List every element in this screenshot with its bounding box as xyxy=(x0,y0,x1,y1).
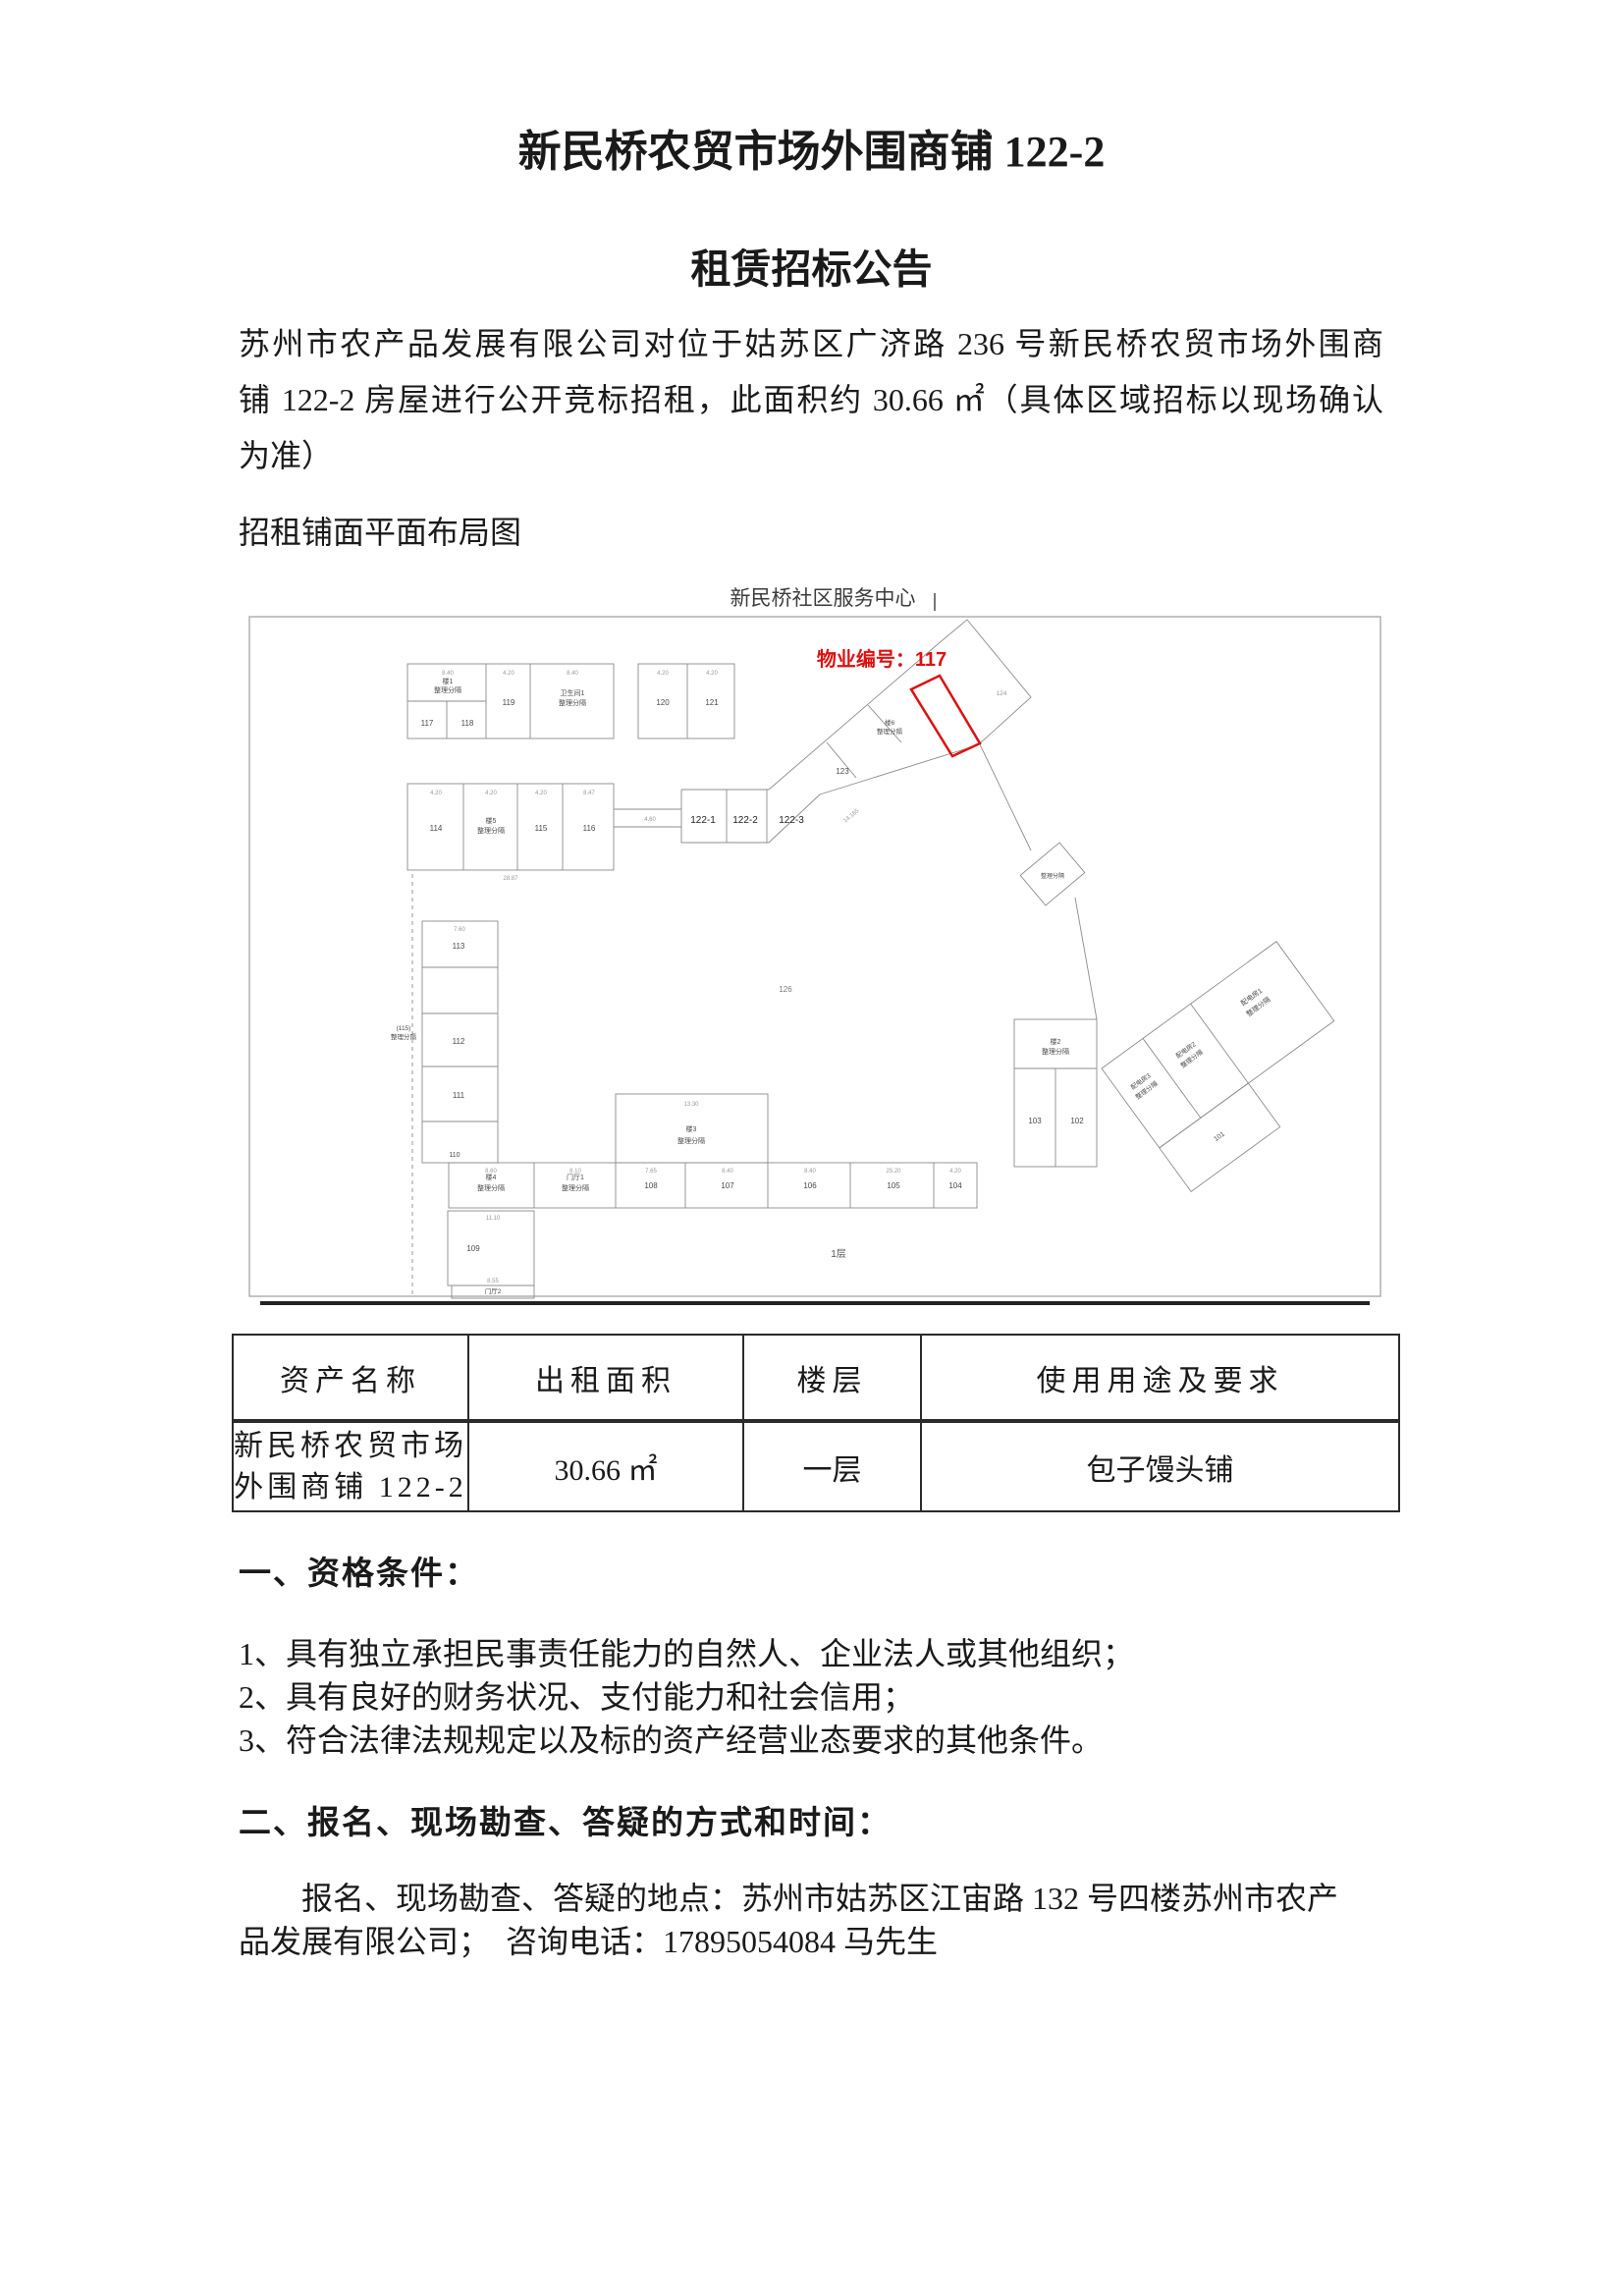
plan-label: 119 xyxy=(503,698,515,707)
plan-label: 7.60 xyxy=(454,927,465,933)
plan-label: 28.87 xyxy=(503,876,518,882)
section2-line-2: 品发展有限公司； 咨询电话：17895054084 马先生 xyxy=(239,1920,1397,1963)
asset-name-line-1: 新民桥农贸市场 xyxy=(234,1426,467,1467)
document-subtitle: 租赁招标公告 xyxy=(0,244,1623,295)
plan-linework xyxy=(249,593,1380,1303)
plan-label: 109 xyxy=(466,1244,480,1253)
unit-122-3-label: 122-3 xyxy=(779,815,804,826)
section1-heading: 一、资格条件： xyxy=(239,1554,479,1593)
plan-label: 4.20 xyxy=(485,791,497,796)
plan-caption: 招租铺面平面布局图 xyxy=(239,505,521,561)
plan-labels: 新民桥社区服务中心物业编号：117122-1122-2122-3楼1整理分隔11… xyxy=(391,587,1272,1295)
plan-label: 8.40 xyxy=(442,671,454,677)
plan-label: 111 xyxy=(453,1091,465,1100)
intro-line-1: 苏州市农产品发展有限公司对位于姑苏区广济路 236 号新民桥农贸市场外围商 xyxy=(239,316,1383,372)
plan-label: 117 xyxy=(421,719,434,728)
plan-label: 整理分隔 xyxy=(562,1183,589,1192)
plan-label: 整理分隔 xyxy=(1041,872,1064,880)
plan-label: 116 xyxy=(583,824,596,833)
table-row: 新民桥农贸市场 外围商铺 122-2 30.66 ㎡ 一层 包子馒头铺 xyxy=(233,1421,1399,1511)
section2-paragraph: 报名、现场勘查、答疑的地点：苏州市姑苏区江宙路 132 号四楼苏州市农产 品发展… xyxy=(239,1877,1397,1963)
cell-floor: 一层 xyxy=(743,1421,921,1511)
asset-name-line-2: 外围商铺 122-2 xyxy=(234,1467,467,1508)
plan-label: 126 xyxy=(779,985,792,994)
plan-label: 120 xyxy=(656,698,670,707)
cell-area: 30.66 ㎡ xyxy=(468,1421,743,1511)
plan-label: 114 xyxy=(430,824,443,833)
section1-item-2: 2、具有良好的财务状况、支付能力和社会信用； xyxy=(239,1675,1397,1719)
plan-label: 楼3 xyxy=(686,1124,697,1133)
plan-label: 8.40 xyxy=(567,671,578,677)
plan-label: 4.60 xyxy=(644,817,656,823)
unit-122-1-label: 122-1 xyxy=(690,815,716,826)
plan-label: 4.20 xyxy=(535,791,547,796)
plan-label: 115 xyxy=(535,824,548,833)
plan-label: 13.30 xyxy=(683,1102,699,1108)
section1-list: 1、具有独立承担民事责任能力的自然人、企业法人或其他组织； 2、具有良好的财务状… xyxy=(239,1632,1397,1762)
section1-item-1: 1、具有独立承担民事责任能力的自然人、企业法人或其他组织； xyxy=(239,1632,1397,1675)
highlighted-unit-outline xyxy=(911,676,980,756)
table-header-row: 资产名称 出租面积 楼层 使用用途及要求 xyxy=(233,1335,1399,1421)
plan-label: (115) xyxy=(397,1025,411,1032)
plan-label: 整理分隔 xyxy=(434,685,461,694)
plan-label: 103 xyxy=(1028,1117,1042,1125)
plan-label: 4.20 xyxy=(503,671,514,677)
plan-label: 楼1 xyxy=(443,677,454,685)
plan-label: 8.40 xyxy=(804,1169,816,1175)
unit-122-2-label: 122-2 xyxy=(732,815,758,826)
plan-label: 1层 xyxy=(831,1248,846,1260)
plan-label: 107 xyxy=(721,1181,734,1190)
plan-label: 4.20 xyxy=(949,1169,961,1175)
header-floor: 楼层 xyxy=(743,1335,921,1421)
plan-label: 124 xyxy=(997,690,1007,697)
plan-label: 110 xyxy=(449,1152,460,1159)
section2-heading: 二、报名、现场勘查、答疑的方式和时间： xyxy=(239,1803,892,1842)
plan-label: 118 xyxy=(461,719,474,728)
plan-label: 113 xyxy=(453,942,465,951)
intro-paragraph: 苏州市农产品发展有限公司对位于姑苏区广济路 236 号新民桥农贸市场外围商 铺 … xyxy=(239,316,1383,484)
header-usage: 使用用途及要求 xyxy=(921,1335,1399,1421)
property-number-label: 物业编号：117 xyxy=(817,647,947,671)
plan-label: 8.60 xyxy=(485,1169,497,1175)
plan-label: 整理分隔 xyxy=(477,1183,505,1192)
plan-label: 4.20 xyxy=(706,671,718,677)
plan-label: 整理分隔 xyxy=(877,727,903,736)
plan-title-label: 新民桥社区服务中心 xyxy=(730,587,916,610)
section2-line-1: 报名、现场勘查、答疑的地点：苏州市姑苏区江宙路 132 号四楼苏州市农产 xyxy=(239,1877,1397,1920)
plan-label: 楼2 xyxy=(1051,1037,1061,1046)
floor-plan-image: 新民桥社区服务中心物业编号：117122-1122-2122-3楼1整理分隔11… xyxy=(245,587,1384,1322)
plan-label: 101 xyxy=(1213,1130,1226,1143)
plan-label: 卫生间1 xyxy=(561,688,585,697)
cell-asset-name: 新民桥农贸市场 外围商铺 122-2 xyxy=(233,1421,468,1511)
plan-label: 整理分隔 xyxy=(477,826,505,835)
header-area: 出租面积 xyxy=(468,1335,743,1421)
document-title: 新民桥农贸市场外围商铺 122-2 xyxy=(0,126,1623,179)
plan-label: 8.47 xyxy=(583,791,595,796)
asset-spec-table: 资产名称 出租面积 楼层 使用用途及要求 新民桥农贸市场 外围商铺 122-2 … xyxy=(232,1334,1400,1512)
plan-label: 8.55 xyxy=(487,1279,499,1285)
intro-line-2: 铺 122-2 房屋进行公开竞标招租，此面积约 30.66 ㎡（具体区域招标以现… xyxy=(239,372,1383,428)
plan-label: 108 xyxy=(644,1181,658,1190)
plan-label: 25.20 xyxy=(886,1169,901,1175)
plan-label: 102 xyxy=(1070,1117,1084,1125)
plan-label: 门厅2 xyxy=(485,1286,502,1295)
plan-label: 11.10 xyxy=(486,1216,501,1222)
plan-label: 整理分隔 xyxy=(1042,1047,1069,1056)
plan-label: 123 xyxy=(836,767,849,776)
plan-label: 121 xyxy=(705,698,719,707)
plan-label: 112 xyxy=(453,1037,465,1046)
header-asset-name: 资产名称 xyxy=(233,1335,468,1421)
intro-line-3: 为准） xyxy=(239,428,1383,484)
plan-label: 整理分隔 xyxy=(391,1032,417,1041)
plan-label: 105 xyxy=(887,1181,900,1190)
plan-label: 4.20 xyxy=(657,671,669,677)
section1-item-3: 3、符合法律法规规定以及标的资产经营业态要求的其他条件。 xyxy=(239,1719,1397,1762)
plan-label: 8.10 xyxy=(569,1169,581,1175)
plan-label: 楼6 xyxy=(885,718,895,727)
plan-label: 8.40 xyxy=(722,1169,733,1175)
plan-label: 104 xyxy=(948,1181,962,1190)
plan-label: 106 xyxy=(803,1181,817,1190)
plan-label: 7.65 xyxy=(645,1169,657,1175)
plan-label: 14.185 xyxy=(842,808,860,825)
plan-label: 楼5 xyxy=(486,816,497,825)
plan-label: 4.20 xyxy=(430,791,442,796)
cell-usage: 包子馒头铺 xyxy=(921,1421,1399,1511)
document-page: 新民桥农贸市场外围商铺 122-2 租赁招标公告 苏州市农产品发展有限公司对位于… xyxy=(0,0,1623,2296)
plan-label: 整理分隔 xyxy=(677,1136,705,1145)
floor-plan-svg: 新民桥社区服务中心物业编号：117122-1122-2122-3楼1整理分隔11… xyxy=(245,587,1384,1322)
plan-label: 整理分隔 xyxy=(559,698,586,707)
